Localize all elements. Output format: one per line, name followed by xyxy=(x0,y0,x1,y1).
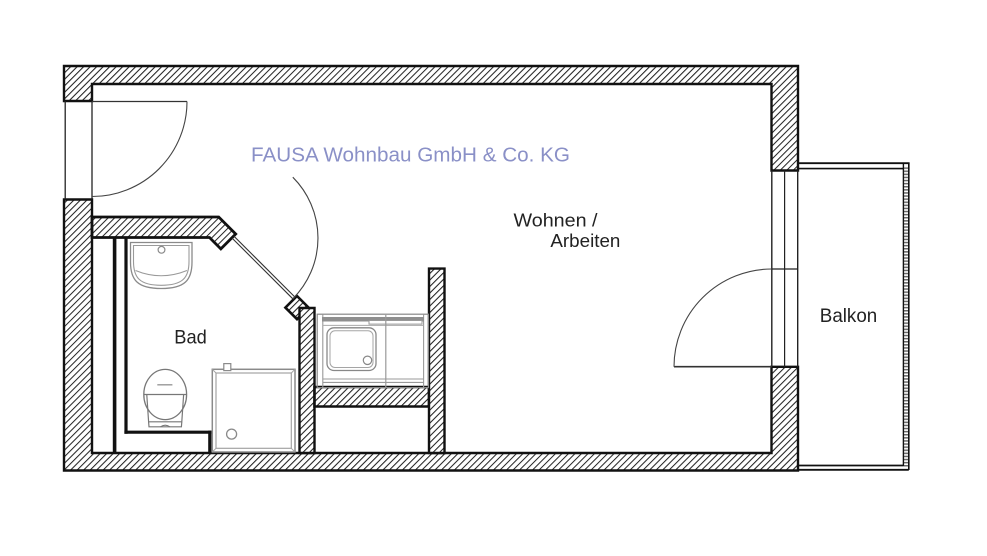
svg-text:FAUSA Wohnbau GmbH & Co. KG: FAUSA Wohnbau GmbH & Co. KG xyxy=(251,145,570,167)
svg-text:Bad: Bad xyxy=(174,326,207,348)
svg-text:Balkon: Balkon xyxy=(820,305,877,327)
svg-text:Arbeiten: Arbeiten xyxy=(550,230,620,251)
svg-text:Wohnen /: Wohnen / xyxy=(514,210,599,231)
